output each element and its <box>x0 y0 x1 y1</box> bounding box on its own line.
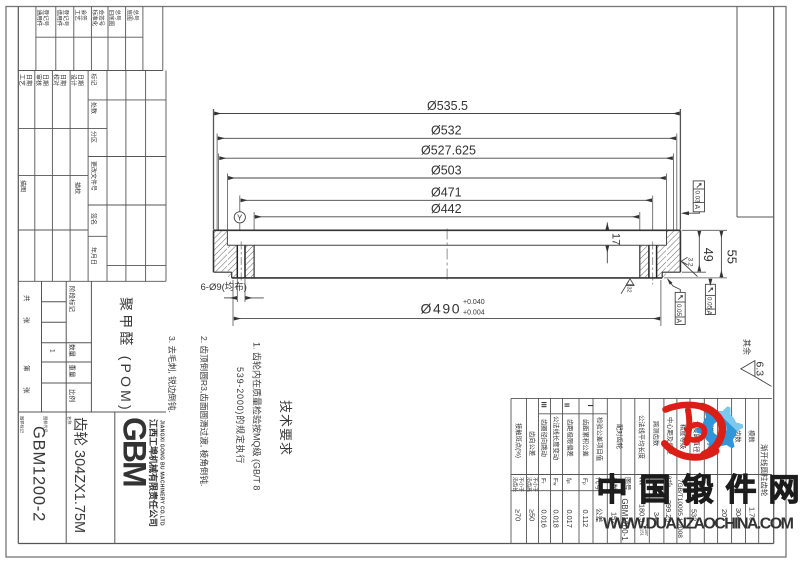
svg-text:0.016: 0.016 <box>540 510 549 528</box>
svg-text:处数: 处数 <box>90 102 98 114</box>
svg-text:沿齿高: 沿齿高 <box>526 477 533 492</box>
svg-text:公法线长度变动: 公法线长度变动 <box>552 416 561 460</box>
svg-text:Ø532: Ø532 <box>431 124 462 138</box>
svg-text:校对: 校对 <box>52 74 60 86</box>
svg-text:日期: 日期 <box>25 74 33 86</box>
svg-text:齿距极限偏差: 齿距极限偏差 <box>566 419 575 457</box>
svg-text:≥50: ≥50 <box>528 509 537 521</box>
svg-text:登记号: 登记号 <box>42 10 50 27</box>
svg-text:工艺: 工艺 <box>18 74 26 86</box>
svg-text:0.03: 0.03 <box>694 191 701 204</box>
svg-text:其余: 其余 <box>742 339 752 355</box>
svg-text:公法线平均长度: 公法线平均长度 <box>638 415 647 460</box>
svg-text:0.017: 0.017 <box>565 510 574 528</box>
svg-text:江西工埠机械有限责任公司: 江西工埠机械有限责任公司 <box>148 419 159 527</box>
svg-text:设计: 设计 <box>70 74 78 86</box>
svg-text:不小于: 不小于 <box>518 477 525 492</box>
svg-text:17: 17 <box>610 233 622 245</box>
svg-text:描校: 描校 <box>74 182 82 194</box>
svg-text:+0.004: +0.004 <box>463 310 485 317</box>
svg-text:总号: 总号 <box>114 10 122 22</box>
svg-text:6.3: 6.3 <box>754 362 766 377</box>
svg-text:≥70: ≥70 <box>514 509 523 521</box>
svg-text:55: 55 <box>724 250 739 264</box>
svg-text:标记: 标记 <box>90 74 98 86</box>
svg-text:GBM: GBM <box>117 417 153 486</box>
svg-text:Ø490: Ø490 <box>421 301 462 317</box>
svg-text:WWW.DUANZAOCHINA.COM: WWW.DUANZAOCHINA.COM <box>603 516 794 533</box>
svg-text:1. 齿轮内在质量检验按MQ级 (GB/T 8: 1. 齿轮内在质量检验按MQ级 (GB/T 8 <box>252 342 263 490</box>
svg-text:中国锻件网: 中国锻件网 <box>597 473 800 508</box>
svg-text:I: I <box>586 405 595 407</box>
svg-text:Fp: Fp <box>581 478 588 485</box>
svg-text:图样代号: 图样代号 <box>42 416 49 433</box>
svg-text:fpt: fpt <box>565 478 572 484</box>
svg-text:重量: 重量 <box>68 365 76 379</box>
svg-text:名称: 名称 <box>66 416 73 424</box>
svg-text:3. 去毛刺, 锐边倒钝.: 3. 去毛刺, 锐边倒钝. <box>167 336 178 413</box>
svg-text:齿距累积公差: 齿距累积公差 <box>582 419 591 457</box>
svg-text:更改文件号: 更改文件号 <box>90 161 98 191</box>
svg-text:总号: 总号 <box>132 10 140 22</box>
svg-text:会签号: 会签号 <box>98 10 106 27</box>
svg-text:6-Ø9(均布): 6-Ø9(均布) <box>201 281 247 293</box>
svg-text:2. 齿顶倒圆R3,齿面圆滑过渡, 棱角倒钝.: 2. 齿顶倒圆R3,齿面圆滑过渡, 棱角倒钝. <box>199 336 210 486</box>
svg-text:不小于: 不小于 <box>532 477 539 492</box>
svg-text:年月日: 年月日 <box>90 247 98 265</box>
svg-text:III: III <box>539 402 548 408</box>
svg-text:图样标记: 图样标记 <box>19 416 26 434</box>
svg-text:接触斑点(%): 接触斑点(%) <box>514 423 523 458</box>
svg-text:模数: 模数 <box>748 430 757 443</box>
svg-text:+0.040: +0.040 <box>463 299 485 306</box>
svg-text:A: A <box>705 311 712 316</box>
svg-text:张: 张 <box>23 317 32 324</box>
svg-text:张: 张 <box>23 387 32 394</box>
svg-text:3.2: 3.2 <box>687 258 694 267</box>
svg-text:聚甲醛 (POM): 聚甲醛 (POM) <box>118 297 134 413</box>
svg-text:数量: 数量 <box>68 344 77 358</box>
svg-text:49: 49 <box>701 248 715 262</box>
svg-text:检验公差项目值: 检验公差项目值 <box>596 417 605 462</box>
svg-text:日期: 日期 <box>59 74 67 86</box>
svg-text:登记号: 登记号 <box>62 10 70 27</box>
svg-text:GBM1200-2: GBM1200-2 <box>30 426 48 522</box>
svg-text:沿齿长: 沿齿长 <box>512 477 519 492</box>
svg-text:阶段标记: 阶段标记 <box>68 286 77 313</box>
svg-text:齿圈径向跳动: 齿圈径向跳动 <box>540 419 549 457</box>
svg-text:Y: Y <box>237 214 243 223</box>
svg-text:第: 第 <box>23 365 32 372</box>
svg-text:0.05: 0.05 <box>675 304 682 317</box>
svg-text:Ø527.625: Ø527.625 <box>421 144 476 158</box>
svg-text:II: II <box>562 403 571 407</box>
svg-text:描图: 描图 <box>19 180 27 192</box>
svg-text:工艺: 工艺 <box>74 10 81 22</box>
svg-text:齿轮 304ZX1.75M: 齿轮 304ZX1.75M <box>71 417 88 533</box>
svg-text:0.112: 0.112 <box>581 510 590 528</box>
svg-text:日期: 日期 <box>41 74 49 86</box>
svg-text:分区: 分区 <box>90 131 98 143</box>
svg-text:技术要求: 技术要求 <box>278 400 293 456</box>
svg-text:A: A <box>693 205 700 210</box>
svg-text:配对齿轮: 配对齿轮 <box>616 424 625 450</box>
svg-text:Ø503: Ø503 <box>431 164 462 178</box>
svg-text:齿向公差: 齿向公差 <box>528 431 537 456</box>
svg-text:共: 共 <box>23 295 32 302</box>
svg-text:日期: 日期 <box>77 74 85 86</box>
svg-text:539-2000)的规定执行: 539-2000)的规定执行 <box>235 367 246 464</box>
svg-text:32: 32 <box>626 287 632 293</box>
svg-text:审核: 审核 <box>34 74 42 86</box>
svg-text:比例: 比例 <box>68 389 77 402</box>
svg-text:签名: 签名 <box>90 213 98 225</box>
svg-text:Fr: Fr <box>540 478 547 484</box>
svg-text:会签: 会签 <box>80 10 88 22</box>
svg-text:1: 1 <box>49 349 56 353</box>
svg-text:跨测齿数: 跨测齿数 <box>652 421 661 447</box>
svg-text:Ø442: Ø442 <box>431 202 462 216</box>
svg-text:0.05: 0.05 <box>705 297 712 310</box>
svg-text:A: A <box>675 319 682 324</box>
svg-text:JIANGXI GONG BU MACHINERY CO.L: JIANGXI GONG BU MACHINERY CO.LTD <box>158 420 164 526</box>
svg-text:Fw: Fw <box>552 478 559 486</box>
svg-text:Ø535.5: Ø535.5 <box>427 99 468 113</box>
svg-text:Ø471: Ø471 <box>431 186 462 200</box>
svg-text:0.018: 0.018 <box>552 510 561 528</box>
